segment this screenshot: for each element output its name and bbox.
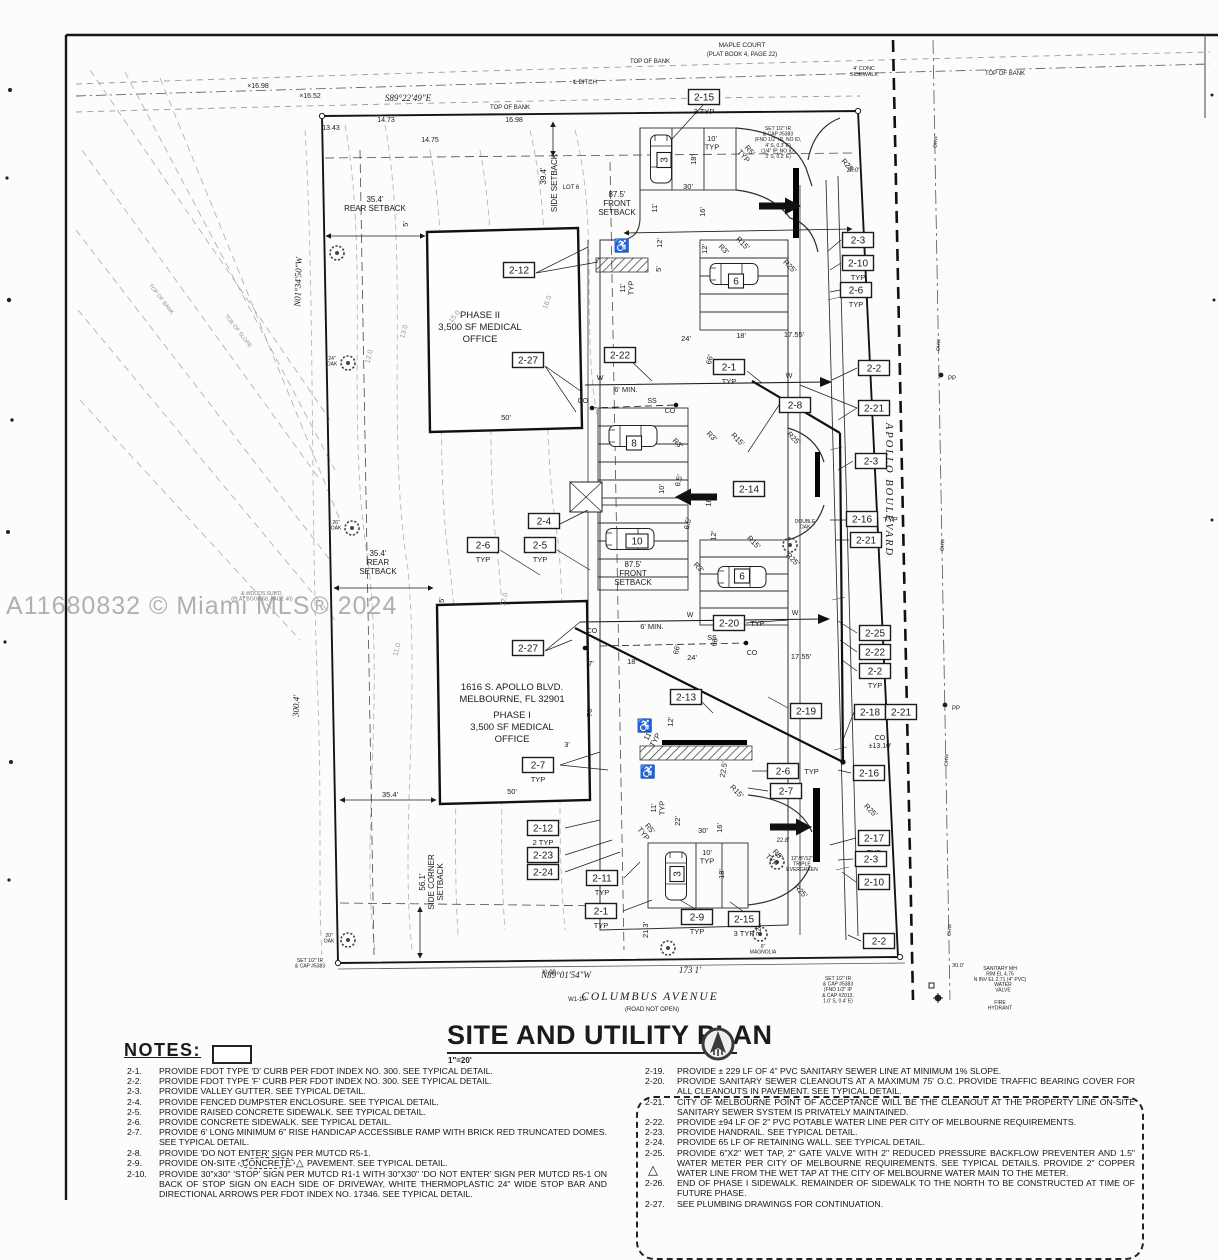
svg-text:TYP: TYP [594, 921, 609, 930]
tree-icon [661, 941, 675, 955]
handicap-icon: ♿ [640, 764, 656, 779]
dim-label: 18' [736, 331, 746, 340]
dim-label: 3' [564, 740, 570, 749]
callout-2-8: 2-8 [780, 398, 811, 413]
dim-label: 12' [700, 244, 709, 254]
drawing-scale: 1"=20' [448, 1056, 472, 1065]
dim-label: 30' [683, 182, 693, 191]
dim-label: R5'TYP [763, 846, 786, 869]
svg-text:6: 6 [733, 277, 739, 288]
dim-label: R3' [717, 242, 732, 257]
plan-annotation: 6"MAGNOLIA [750, 944, 777, 956]
columbus-avenue-label: COLUMBUS AVENUE [581, 991, 719, 1003]
dim-label: R15' [734, 235, 752, 253]
svg-text:2-23: 2-23 [533, 851, 553, 862]
svg-text:2-19: 2-19 [796, 707, 816, 718]
setback-lines [325, 150, 852, 955]
plan-annotation: W [792, 610, 799, 617]
plan-annotation: TOE OF SLOPE [223, 314, 253, 350]
svg-text:2-10: 2-10 [864, 878, 884, 889]
callout-2-12: 2-12 [504, 263, 535, 278]
callout-2-14: 2-14 [734, 482, 765, 497]
plan-annotation: 30.0' [952, 963, 964, 969]
svg-text:2-13: 2-13 [676, 693, 696, 704]
plan-annotation: CO [587, 628, 598, 635]
plan-annotation: 13.0 [399, 324, 409, 339]
svg-text:2-3: 2-3 [851, 236, 866, 247]
svg-text:TYP: TYP [868, 681, 883, 690]
callout-2-19: 2-19 [791, 704, 822, 719]
dim-label: R25' [862, 802, 880, 820]
plan-annotation: W [687, 612, 694, 619]
plan-annotation: W [597, 375, 604, 382]
svg-text:2-3: 2-3 [864, 457, 879, 468]
dim-label: R3' [692, 560, 707, 575]
svg-text:2-15: 2-15 [734, 915, 754, 926]
callout-2-13: 2-13 [671, 690, 702, 705]
parking-count: 10 [626, 534, 648, 548]
dim-label: 66' [671, 643, 682, 655]
revision-cloud [636, 1096, 1144, 1260]
dim-label: 6.5' [682, 516, 693, 530]
svg-text:3: 3 [673, 871, 684, 877]
note-2-2: 2-2.PROVIDE FDOT TYPE 'F' CURB PER FDOT … [127, 1076, 607, 1086]
svg-text:2-6: 2-6 [476, 541, 491, 552]
plan-annotation: TOP OF BANK [985, 71, 1025, 77]
note-2-6: 2-6.PROVIDE CONCRETE SIDEWALK. SEE TYPIC… [127, 1117, 607, 1127]
plan-annotation: 12.0 [364, 349, 374, 364]
dumpster-enclosure [570, 482, 602, 512]
dim-label: 18' [717, 869, 726, 879]
plan-annotation: ×16.98 [247, 83, 269, 90]
tree-icon [345, 521, 359, 535]
plan-annotation: X'-09 [542, 970, 556, 976]
dim-label: 17.55' [791, 652, 812, 661]
plan-annotation: WATERVALVE [994, 982, 1012, 994]
plan-annotation: TOP OF BANK [630, 59, 670, 65]
note-2-4: 2-4.PROVIDE FENCED DUMPSTER ENCLOSURE. S… [127, 1097, 607, 1107]
callout-2-22: 2-22 [860, 645, 891, 660]
callout-2-3: 2-3 [843, 233, 874, 248]
plan-annotation: 24"OAK [327, 356, 338, 368]
plan-annotation: W [786, 373, 793, 380]
dim-label: 10'TYP [700, 848, 715, 865]
plan-annotation: 35.4'REAR SETBACK [344, 195, 406, 213]
maple-court-label: MAPLE COURT [719, 42, 766, 49]
dim-label: 11' [650, 203, 659, 213]
svg-text:TYP: TYP [531, 775, 546, 784]
svg-text:3: 3 [660, 157, 671, 163]
callout-2-3: 2-3 [856, 852, 887, 867]
dim-label: 16' [715, 823, 724, 833]
parking-count: 6 [735, 569, 750, 583]
svg-text:2-1: 2-1 [594, 907, 609, 918]
svg-text:2-3: 2-3 [864, 855, 879, 866]
tree-icon [341, 933, 355, 947]
plan-annotation: TOP OF BANK [490, 105, 530, 111]
dim-label: 24' [687, 653, 697, 662]
callout-2-18: 2-18 [855, 705, 886, 720]
svg-text:2-17: 2-17 [864, 834, 884, 845]
parking-count: 6 [729, 274, 744, 288]
svg-text:10: 10 [631, 537, 643, 548]
plan-annotation: SANITARY MHRIM EL 4.75N INV EL 2.71 (4" … [974, 966, 1027, 983]
plan-annotation: SIDE SETBACK [550, 153, 559, 212]
callout-2-6: 2-6TYP [468, 538, 499, 565]
plan-annotation: SS [647, 398, 657, 405]
dim-label: R5'TYP [635, 820, 658, 842]
title-underline [447, 1052, 737, 1054]
svg-text:TYP: TYP [804, 767, 819, 776]
plan-annotation: FIREHYDRANT [988, 1000, 1012, 1012]
clouded-word: CONCRETE [238, 1157, 295, 1169]
callout-2-27: 2-27 [513, 641, 544, 656]
dim-label: 6.5' [673, 473, 684, 487]
parking-count: 3 [670, 867, 684, 882]
callout-2-1: 2-1TYP [586, 904, 617, 931]
notes-legend-box [212, 1045, 252, 1064]
svg-text:2-7: 2-7 [779, 787, 794, 798]
svg-text:TYP: TYP [595, 888, 610, 897]
callout-2-21: 2-21 [886, 705, 917, 720]
plan-annotation: 87.5'FRONTSETBACK [614, 560, 652, 587]
dim-label: 5' [437, 597, 446, 603]
apollo-boulevard-label: APOLLO BOULEVARD [883, 422, 894, 557]
plan-annotation: TOP OF BANK [147, 283, 175, 316]
callout-2-2: 2-2 [864, 934, 895, 949]
note-2-20: 2-20.PROVIDE SANITARY SEWER CLEANOUTS AT… [645, 1076, 1135, 1096]
mls-watermark: A11680832 © Miami MLS® 2024 [6, 592, 397, 621]
dim-label: R25' [781, 258, 799, 276]
apollo-centerline [933, 40, 950, 1000]
plan-annotation: PP [948, 376, 956, 382]
note-2-19: 2-19.PROVIDE ± 229 LF OF 4" PVC SANITARY… [645, 1066, 1135, 1076]
note-2-5: 2-5.PROVIDE RAISED CONCRETE SIDEWALK. SE… [127, 1107, 607, 1117]
svg-text:2 TYP: 2 TYP [533, 838, 554, 847]
callout-2-12: 2-122 TYP [528, 821, 559, 848]
svg-text:TYP: TYP [722, 377, 737, 386]
svg-text:2-21: 2-21 [864, 404, 884, 415]
callout-2-9: 2-9TYP [682, 910, 713, 937]
plan-annotation: 6' MIN. [640, 622, 664, 631]
callout-2-21: 2-21 [859, 401, 890, 416]
callout-2-25: 2-25 [860, 626, 891, 641]
phase2-label-3: OFFICE [463, 334, 498, 345]
phase1-label-1: 1616 S. APOLLO BLVD. [461, 682, 563, 693]
svg-text:6: 6 [739, 572, 745, 583]
svg-text:2-21: 2-21 [856, 536, 876, 547]
plan-annotation: OHW [940, 538, 947, 551]
plan-annotation: 13.43 [322, 125, 340, 132]
svg-text:2-25: 2-25 [865, 629, 885, 640]
plan-annotation: ×16.52 [299, 93, 321, 100]
notes-column-left: 2-1.PROVIDE FDOT TYPE 'D' CURB PER FDOT … [127, 1066, 607, 1200]
svg-text:2-12: 2-12 [533, 824, 553, 835]
handicap-icon: ♿ [614, 238, 630, 253]
note-2-3: 2-3.PROVIDE VALLEY GUTTER. SEE TYPICAL D… [127, 1086, 607, 1096]
plan-annotation: 4' CONCSIDEWALK [850, 66, 879, 78]
south-distance: 173 1' [679, 965, 702, 975]
callout-2-2: 2-2 [859, 361, 890, 376]
dim-label: R3' [705, 429, 720, 444]
callout-2-23: 2-23 [528, 848, 559, 863]
svg-text:TYP: TYP [533, 555, 548, 564]
svg-text:2-10: 2-10 [848, 259, 868, 270]
svg-text:2-2: 2-2 [872, 937, 887, 948]
dim-label: 16' [704, 496, 714, 507]
svg-text:2-9: 2-9 [690, 913, 705, 924]
callout-2-20: 2-20TYP [714, 616, 765, 631]
plan-annotation: 26"OAK [331, 520, 342, 532]
fire-hydrant-icon [933, 993, 943, 1003]
dim-label: R3' [671, 436, 686, 451]
plan-annotation: 16.98 [505, 117, 523, 124]
svg-text:TYP: TYP [849, 300, 864, 309]
dim-label: 5' [401, 221, 410, 227]
phase1-label-3: PHASE I [493, 710, 531, 721]
dim-label: R25' [792, 883, 810, 901]
plan-annotation: OHW [944, 753, 951, 766]
dim-label: 70' [585, 707, 594, 717]
revision-delta-icon: △ [648, 1162, 658, 1178]
dim-label: 22' [673, 816, 682, 826]
plan-annotation: SET 1/2" IR& CAP #5383 [295, 958, 325, 970]
plan-annotation: 20"OAK [324, 933, 335, 945]
svg-text:2-16: 2-16 [859, 769, 879, 780]
note-2-10: 2-10.PROVIDE 30"x30" 'STOP' SIGN PER MUT… [127, 1169, 607, 1200]
plan-annotation: CO [578, 398, 589, 405]
plan-annotation: W1-10 [568, 997, 586, 1003]
callout-2-1: 2-1TYP [714, 360, 745, 387]
svg-text:2-2: 2-2 [867, 364, 882, 375]
dim-label: R25' [784, 551, 802, 569]
note-2-8: 2-8.PROVIDE 'DO NOT ENTER' SIGN PER MUTC… [127, 1148, 607, 1158]
plan-annotation: 11.0 [392, 642, 402, 657]
svg-text:2-16: 2-16 [852, 515, 872, 526]
dim-label: R15' [729, 431, 747, 449]
svg-text:2-14: 2-14 [739, 485, 759, 496]
plan-annotation: CO [747, 650, 758, 657]
svg-text:TYP: TYP [883, 515, 898, 524]
dim-label: 24' [681, 334, 691, 343]
plan-annotation: 35.4'REARSETBACK [359, 549, 397, 576]
phase1-label-2: MELBOURNE, FL 32901 [459, 694, 564, 705]
notes-heading: NOTES: [124, 1040, 201, 1061]
plan-annotation: PP [952, 706, 960, 712]
svg-text:2-24: 2-24 [533, 868, 553, 879]
svg-text:2-22: 2-22 [865, 648, 885, 659]
tree-icon [330, 246, 344, 260]
svg-text:2-11: 2-11 [592, 874, 612, 885]
callout-2-5: 2-5TYP [525, 538, 556, 565]
svg-text:TYP: TYP [476, 555, 491, 564]
dim-label: 18' [627, 657, 637, 666]
note-2-1: 2-1.PROVIDE FDOT TYPE 'D' CURB PER FDOT … [127, 1066, 607, 1076]
north-arrow-icon [700, 1026, 736, 1062]
svg-text:2-21: 2-21 [891, 708, 911, 719]
parking-count: 8 [627, 436, 642, 450]
svg-text:2-7: 2-7 [531, 761, 546, 772]
dim-label: 10' [657, 484, 666, 494]
dim-label: 66' [709, 635, 720, 647]
plan-annotation: 6' MIN. [614, 385, 638, 394]
columbus-note: (ROAD NOT OPEN) [625, 1007, 679, 1013]
west-bearing: N01°34'50"W [292, 255, 304, 308]
svg-text:2-27: 2-27 [518, 644, 538, 655]
dim-label: 50' [507, 787, 517, 796]
columbus-edge-line [338, 963, 905, 969]
svg-text:3 TYP: 3 TYP [734, 929, 755, 938]
inline-delta-icon: △ [295, 1158, 305, 1169]
svg-text:2-27: 2-27 [518, 356, 538, 367]
plan-annotation: 39.4' [539, 167, 548, 185]
svg-text:2-22: 2-22 [610, 351, 630, 362]
dim-label: 7' [588, 659, 594, 668]
dim-label: 22.8' [777, 838, 790, 844]
plan-annotation: 14.73 [377, 117, 395, 124]
dim-label: 12' [709, 530, 719, 541]
dim-label: 11'TYP [618, 281, 635, 296]
maple-court-plat: (PLAT BOOK 4, PAGE 22) [707, 52, 777, 58]
plan-annotation: ℄ DITCH [572, 80, 597, 86]
svg-text:TYP: TYP [851, 273, 866, 282]
dim-label: 35.4' [382, 790, 399, 799]
phase1-label-4: 3,500 SF MEDICAL [470, 722, 553, 733]
callout-2-27: 2-27 [513, 353, 544, 368]
water-valve-icon [929, 983, 934, 988]
dim-label: 16' [698, 207, 707, 217]
svg-text:2-12: 2-12 [509, 266, 529, 277]
callout-2-4: 2-4 [529, 514, 560, 529]
callout-2-10: 2-10 [859, 875, 890, 890]
plan-annotation: 56.1'SIDE CORNERSETBACK [418, 854, 445, 910]
dim-label: 18' [689, 155, 698, 165]
svg-text:2-15: 2-15 [694, 93, 714, 104]
plan-annotation: OHW [933, 135, 940, 148]
callout-2-22: 2-22 [605, 348, 636, 363]
callout-2-6: 2-6TYP [768, 764, 819, 779]
callout-2-11: 2-11TYP [587, 871, 618, 898]
dim-label: 50' [501, 413, 511, 422]
dim-label: 17.55' [784, 330, 805, 339]
svg-text:2-4: 2-4 [537, 517, 552, 528]
svg-text:3 TYP: 3 TYP [694, 107, 715, 116]
svg-text:2-18: 2-18 [860, 708, 880, 719]
svg-text:2-1: 2-1 [722, 363, 737, 374]
svg-text:TYP: TYP [750, 619, 765, 628]
note-2-7: 2-7.PROVIDE 6' LONG MINIMUM 6" RISE HAND… [127, 1127, 607, 1147]
callout-2-21: 2-21 [851, 533, 882, 548]
dim-label: 12' [666, 716, 676, 727]
callout-2-24: 2-24 [528, 865, 559, 880]
callout-2-10: 2-10TYP [843, 256, 874, 283]
dim-label: 12' [655, 238, 664, 248]
svg-text:2-6: 2-6 [849, 286, 864, 297]
callout-2-3: 2-3 [856, 454, 887, 469]
svg-text:8: 8 [631, 439, 637, 450]
dim-label: R15' [728, 783, 746, 801]
parking-count: 3 [657, 153, 671, 168]
dim-label: R15' [745, 534, 763, 552]
svg-text:2-20: 2-20 [719, 619, 739, 630]
dim-label: 21.3' [641, 921, 650, 938]
dim-label: 5' [654, 266, 663, 272]
svg-text:2-5: 2-5 [533, 541, 548, 552]
dim-label: 22.5' [718, 760, 730, 778]
svg-text:TYP: TYP [690, 927, 705, 936]
svg-text:2-6: 2-6 [776, 767, 791, 778]
west-distance: 300.4' [291, 694, 302, 719]
plan-annotation: SET 1/2" IR& CAP #5383(FND 1/2" IR, NO I… [755, 126, 802, 160]
north-bearing: S89°22'49"E [385, 93, 432, 103]
dim-label: 10'TYP [705, 134, 720, 151]
slope-hatch-lines [76, 70, 340, 640]
plan-annotation: 87.5'FRONTSETBACK [598, 190, 636, 217]
dim-label: 30' [698, 826, 708, 835]
svg-text:2-8: 2-8 [788, 401, 803, 412]
phase2-label-1: PHASE II [460, 310, 500, 321]
plan-annotation: SET 1/2" IR& CAP #5383(FND 1/2" IP& CAP … [822, 976, 854, 1004]
callout-2-16: 2-16 [854, 766, 885, 781]
phase1-label-5: OFFICE [495, 734, 530, 745]
callout-2-7: 2-7 [771, 784, 802, 799]
plan-annotation: OHW [947, 923, 954, 936]
plan-annotation: OHW [936, 338, 943, 351]
plan-annotation: LOT 6 [563, 185, 580, 191]
plan-annotation: 14.75 [421, 137, 439, 144]
plan-annotation: DOUBLEOAK [795, 519, 816, 531]
dim-label: R5'TYP [735, 142, 758, 164]
note-2-9: 2-9.PROVIDE ON-SITE CONCRETE△ PAVEMENT. … [127, 1158, 607, 1169]
plan-annotation: CO [665, 408, 676, 415]
tree-icon [341, 356, 355, 370]
svg-text:2-2: 2-2 [868, 667, 883, 678]
dim-label: 11'TYP [649, 801, 666, 816]
